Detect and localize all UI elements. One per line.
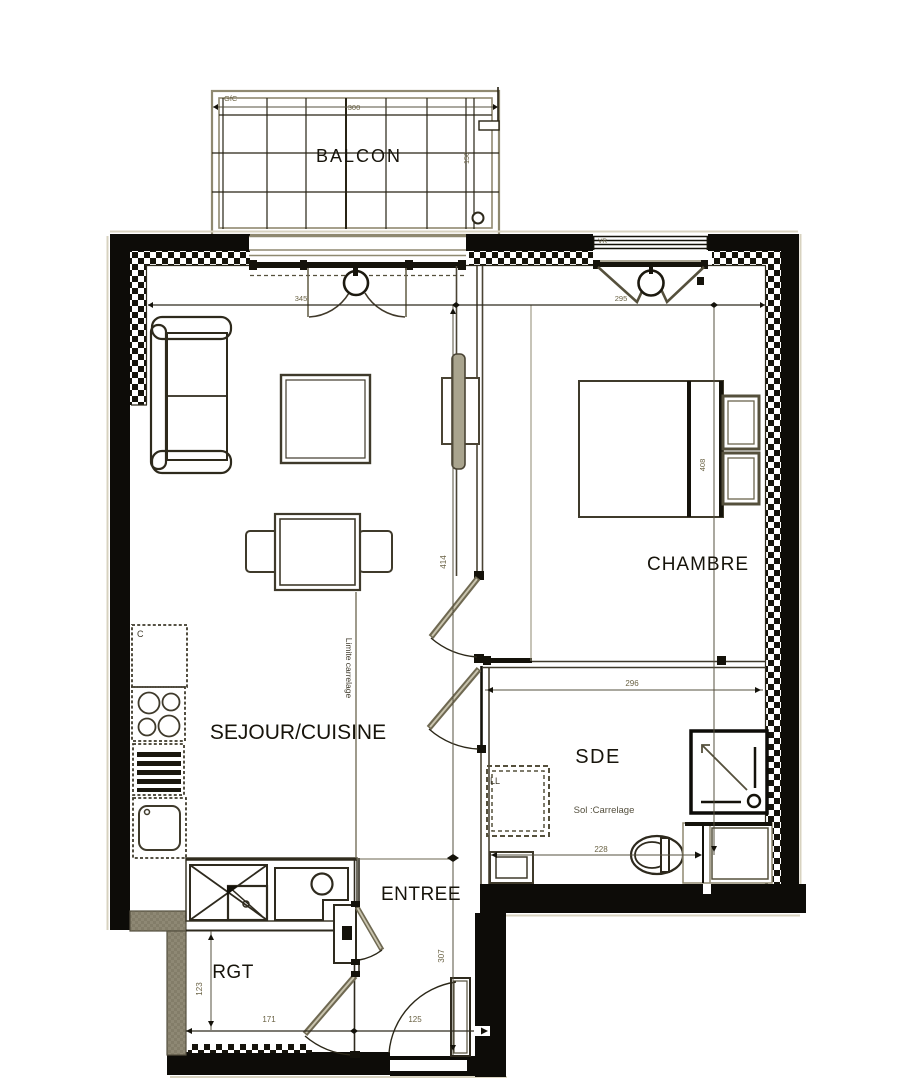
svg-text:SEJOUR/CUISINE: SEJOUR/CUISINE — [210, 721, 386, 744]
svg-text:228: 228 — [594, 845, 608, 854]
svg-text:307: 307 — [437, 949, 446, 963]
svg-text:150: 150 — [464, 152, 471, 164]
svg-text:LL: LL — [490, 776, 500, 786]
svg-text:345: 345 — [295, 294, 308, 303]
svg-text:CHAMBRE: CHAMBRE — [647, 554, 749, 575]
svg-text:408: 408 — [698, 459, 707, 472]
svg-text:414: 414 — [439, 555, 448, 569]
svg-text:RGT: RGT — [212, 962, 254, 983]
svg-text:125: 125 — [408, 1015, 422, 1024]
svg-text:123: 123 — [195, 982, 204, 996]
svg-text:GfC: GfC — [224, 94, 238, 103]
svg-text:VR: VR — [598, 238, 607, 245]
svg-text:Limite carrelage: Limite carrelage — [344, 638, 354, 699]
svg-text:171: 171 — [262, 1015, 276, 1024]
svg-text:SDE: SDE — [575, 746, 621, 768]
svg-text:Sol :Carrelage: Sol :Carrelage — [574, 805, 635, 816]
svg-text:BALCON: BALCON — [316, 146, 402, 166]
svg-text:295: 295 — [615, 294, 628, 303]
svg-text:296: 296 — [625, 679, 639, 688]
svg-text:300: 300 — [348, 103, 361, 112]
svg-text:ENTREE: ENTREE — [381, 884, 461, 905]
svg-text:C: C — [137, 629, 144, 639]
